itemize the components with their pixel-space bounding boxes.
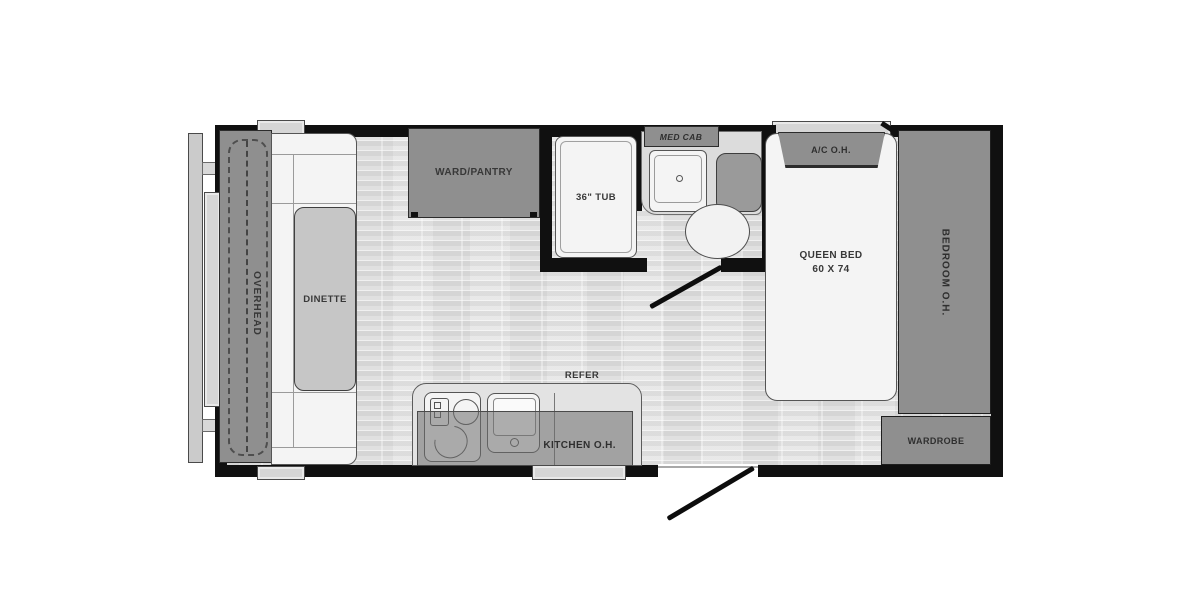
refer-label: REFER <box>565 370 599 381</box>
cabinet-foot-right <box>530 212 537 217</box>
cabinet-foot-left <box>411 212 418 217</box>
toilet-tank <box>716 153 762 212</box>
queen-bed-label: QUEEN BED <box>799 250 862 261</box>
bench-seam-1 <box>272 154 356 155</box>
stove-knob-1 <box>434 402 441 409</box>
bench-seam-3 <box>272 392 356 393</box>
bench-seam-4 <box>272 447 356 448</box>
window-bottom-kitchen <box>532 465 626 480</box>
entry-door-threshold <box>658 466 758 468</box>
kitchen-overhead-cabinet: KITCHEN O.H. <box>417 411 633 466</box>
overhead-label: OVERHEAD <box>251 271 262 336</box>
bath-wall-bottom-left <box>540 258 647 272</box>
faucet-icon <box>676 175 683 182</box>
queen-bed-size-label: 60 X 74 <box>812 264 849 275</box>
sofa-dashed-outline <box>228 139 268 456</box>
toilet <box>685 204 750 259</box>
wardrobe-label: WARDROBE <box>908 436 965 446</box>
dinette-label: DINETTE <box>303 294 346 305</box>
bench-seam-2 <box>272 203 356 204</box>
ward-pantry-label: WARD/PANTRY <box>435 167 513 178</box>
ac-oh-label: A/C O.H. <box>811 145 851 155</box>
kitchen-oh-label: KITCHEN O.H. <box>543 440 616 451</box>
front-cap <box>188 133 203 463</box>
wall-right <box>991 125 1003 477</box>
med-cab-label: MED CAB <box>660 132 702 142</box>
sofa-fold-line <box>246 141 248 452</box>
bathroom-sink <box>649 150 707 212</box>
window-bottom-left <box>257 466 305 480</box>
bedroom-oh-label: BEDROOM O.H. <box>940 228 951 316</box>
overhead-cabinet <box>219 130 272 463</box>
tub-label: 36" TUB <box>576 192 616 203</box>
floorplan-canvas: OVERHEAD DINETTE WARD/PANTRY 36" TUB MED… <box>0 0 1200 600</box>
bath-wall-left <box>540 125 552 272</box>
